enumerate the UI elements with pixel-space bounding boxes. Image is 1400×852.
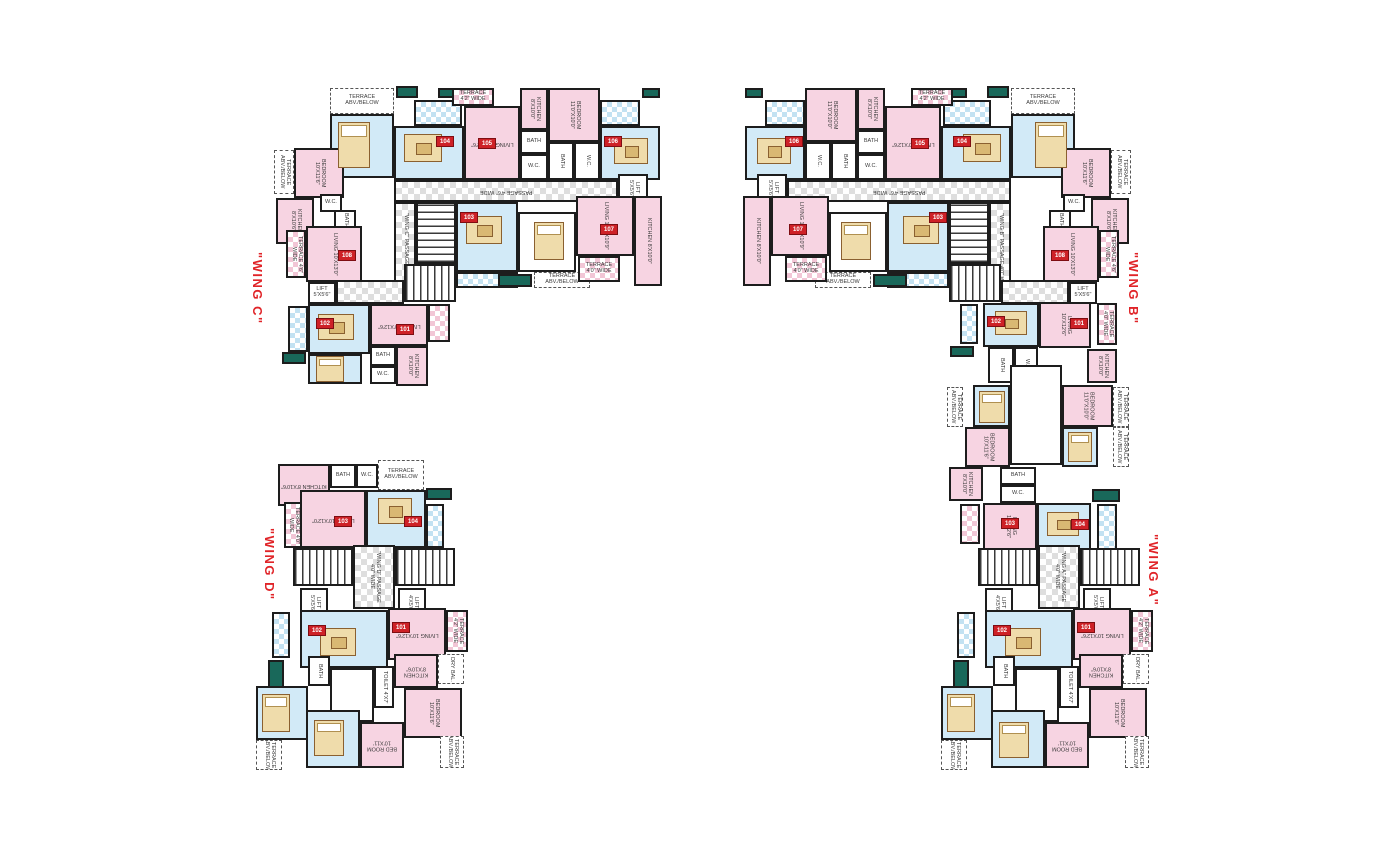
room-label: KITCHEN 8'X10'0": [959, 469, 973, 499]
room-label: BEDROOM 11'0"X10'0": [824, 90, 838, 140]
room-label: TERRACE ABV./BELOW: [1114, 428, 1128, 466]
room-terrace-abv-below: TERRACE ABV./BELOW: [330, 88, 394, 114]
room-kitchen: KITCHEN 8'X10'0": [1087, 349, 1117, 383]
unit-number-badge: 104: [436, 136, 454, 147]
room-bath: BATH: [520, 130, 548, 154]
room-bedroom: BEDROOM 10'X11'6": [965, 427, 1010, 467]
room-living-103: LIVING 10'X12'0": [300, 490, 366, 548]
room-lift: LIFT 5'X5'6": [308, 282, 336, 304]
unit-number-badge: 105: [478, 138, 496, 149]
room-label: TERRACE 4'2" WIDE: [450, 612, 464, 650]
room-kitchen: KITCHEN 8'X10'0": [857, 88, 885, 130]
room-label: TERRACE ABV./BELOW: [947, 740, 961, 770]
bed-icon: [316, 356, 344, 382]
room-terrace-abv-below: TERRACE ABV./BELOW: [274, 150, 294, 194]
room-wc: W.C.: [520, 154, 548, 180]
room-label: BATH: [315, 663, 323, 679]
room-terrace: [600, 100, 640, 126]
room-label: TERRACE ABV./BELOW: [379, 468, 423, 482]
room-terrace: [288, 306, 308, 352]
room-kitchen: KITCHEN 8'X10'0": [396, 346, 428, 386]
room-label: "WING A" PASSAGE 4'0" WIDE: [1052, 547, 1066, 607]
room-terrace: [765, 100, 805, 126]
room-bedroom: BEDROOM 11'0"X10'0": [1062, 385, 1113, 427]
room-wc: W.C.: [1000, 485, 1036, 503]
room-duct: [745, 88, 763, 98]
room-label: TERRACE 4'6" WIDE: [1102, 232, 1116, 276]
room-label: BATH: [557, 153, 565, 169]
bed-icon: [534, 222, 564, 260]
wing-name-label: "WING A": [1146, 534, 1161, 606]
room-label: BEDROOM 11'0"X10'0": [1081, 387, 1095, 425]
room-terrace: TERRACE 4'0" WIDE: [284, 502, 302, 548]
unit-number-badge: 102: [316, 318, 334, 329]
room-bath: BATH: [308, 656, 330, 686]
room-label: TERRACE ABV./BELOW: [1114, 151, 1128, 193]
room-terrace: TERRACE 4'0" WIDE: [578, 256, 620, 282]
room-label: TERRACE ABV./BELOW: [331, 94, 393, 108]
room-label: TERRACE ABV./BELOW: [1114, 388, 1128, 426]
room-label: BATH: [526, 138, 542, 146]
room-label: W.C.: [324, 199, 338, 207]
room-bedroom: BEDROOM 11'0"X10'0": [548, 88, 600, 142]
bed-pillow: [1002, 725, 1026, 734]
unit-number-badge: 103: [334, 516, 352, 527]
unit-number-badge: 102: [987, 316, 1005, 327]
room-label: BATH: [1010, 472, 1026, 480]
unit-number-badge: 104: [404, 516, 422, 527]
bed-pillow: [1038, 125, 1064, 137]
room-staircase: [416, 202, 456, 264]
room-label: BATH: [375, 352, 391, 360]
room-label: LIVING 10'X13'0": [330, 232, 338, 277]
room-staircase: [949, 264, 1001, 302]
room-dry-balcony: DRY BAL.: [438, 654, 464, 684]
unit-number-badge: 107: [600, 224, 618, 235]
room-label: LIFT 5'X5'6": [310, 286, 334, 300]
room-court: [1010, 365, 1062, 465]
room-wc: W.C.: [857, 154, 885, 180]
bed-pillow: [844, 225, 868, 235]
unit-number-badge: 105: [911, 138, 929, 149]
room-label: BEDROOM 10'X11'6": [312, 150, 326, 196]
floor-plan: TERRACE ABV./BELOWTERRACE 4'2" WIDELIVIN…: [0, 0, 1400, 852]
room-duct: [396, 86, 418, 98]
room-bath: BATH: [993, 656, 1015, 686]
room-staircase: [395, 548, 455, 586]
room-kitchen: KITCHEN 8'X10'0": [520, 88, 548, 130]
room-bath: BATH: [1000, 467, 1036, 485]
unit-number-badge: 102: [308, 625, 326, 636]
room-bedroom: BEDROOM 11'0"X10'0": [805, 88, 857, 142]
room-duct: [1092, 489, 1120, 502]
bed-pillow: [319, 359, 341, 366]
room-terrace-abv-below: TERRACE ABV./BELOW: [378, 460, 424, 490]
room-living-101: LIVING 10'X12'6": [388, 608, 446, 660]
bed-pillow: [265, 697, 287, 707]
room-wc: W.C.: [370, 366, 396, 384]
room-label: W.C.: [583, 154, 591, 168]
room-bedroom: BEDROOM 10'X11'6": [1061, 148, 1111, 198]
room-label: PASSAGE 4'6" WIDE: [872, 187, 926, 195]
room-label: KITCHEN 8'X10'6": [280, 481, 328, 489]
room-label: TERRACE 4'0" WIDE: [787, 262, 825, 276]
wing-name-label: "WING D": [262, 528, 277, 601]
room-label: PASSAGE 4'6" WIDE: [479, 187, 533, 195]
sofa-table: [625, 146, 640, 158]
room-staircase: [978, 548, 1038, 586]
room-staircase: [1080, 548, 1140, 586]
room-label: W.C.: [1011, 490, 1025, 498]
room-label: TERRACE 4'6" WIDE: [289, 232, 303, 276]
room-terrace: [1097, 504, 1117, 550]
room-label: BATH: [840, 153, 848, 169]
room-label: "WING D" PASSAGE 4'0" WIDE: [367, 547, 381, 607]
room-label: BATH: [863, 138, 879, 146]
unit-number-badge: 103: [929, 212, 947, 223]
bed-icon: [262, 694, 290, 732]
room-label: DRY BAL.: [447, 656, 455, 683]
room-terrace: [428, 304, 450, 342]
room-label: TERRACE ABV./BELOW: [262, 740, 276, 770]
wing-name-label: "WING C": [250, 252, 265, 325]
room-wc: W.C.: [356, 464, 378, 488]
room-label: BEDROOM 10'X11'6": [981, 429, 995, 465]
room-duct: [268, 660, 284, 688]
bed-icon: [979, 391, 1005, 423]
room-label: TERRACE ABV./BELOW: [1012, 94, 1074, 108]
room-label: DRY BAL.: [1132, 656, 1140, 683]
sofa-table: [1005, 319, 1019, 330]
room-lift: LIFT 5'X5'6": [1069, 282, 1097, 304]
room-label: TERRACE 4'0" WIDE: [1100, 305, 1114, 343]
room-terrace: TERRACE 4'6" WIDE: [1099, 230, 1119, 278]
room-terrace: [960, 304, 978, 344]
room-wc: W.C.: [805, 142, 831, 180]
room-label: BATH: [1000, 663, 1008, 679]
room-living-101: LIVING 10'X12'6": [1073, 608, 1131, 660]
unit-number-badge: 104: [953, 136, 971, 147]
room-bath: BATH: [857, 130, 885, 154]
bed-icon: [1035, 122, 1067, 168]
unit-number-badge: 101: [392, 622, 410, 633]
bed-icon: [338, 122, 370, 168]
room-bedroom: BEDROOM 10'X11'6": [294, 148, 344, 198]
room-label: W.C.: [376, 371, 390, 379]
room-flower-bed: [426, 488, 452, 500]
room-terrace-abv-below: TERRACE ABV./BELOW: [941, 740, 967, 770]
unit-number-badge: 102: [993, 625, 1011, 636]
room-kitchen: KITCHEN 8'X10'0": [743, 196, 771, 286]
bed-icon: [999, 722, 1029, 758]
bed-icon: [841, 222, 871, 260]
room-staircase: [949, 202, 989, 264]
room-bedroom: BED ROOM 10'X11': [1045, 722, 1089, 768]
sofa-table: [416, 143, 432, 155]
sofa-table: [768, 146, 783, 158]
room-bath: BATH: [548, 142, 574, 180]
room-terrace: TERRACE 4'0" WIDE: [1097, 303, 1117, 345]
unit-number-badge: 104: [1071, 519, 1089, 530]
bed-pillow: [341, 125, 367, 137]
room-terrace: [960, 504, 980, 544]
room-wc: W.C.: [574, 142, 600, 180]
room-duct: [950, 346, 974, 357]
sofa-table: [477, 225, 493, 237]
unit-number-badge: 101: [1077, 622, 1095, 633]
room-label: TOILET 4'X7': [1065, 670, 1073, 704]
room-terrace: TERRACE 4'2" WIDE: [452, 88, 494, 106]
unit-number-badge: 103: [460, 212, 478, 223]
unit-number-badge: 108: [1051, 250, 1069, 261]
sofa-table: [1016, 637, 1032, 649]
room-bedroom: BEDROOM 10'X11'6": [404, 688, 462, 738]
room-kitchen: KITCHEN 8'X10'6": [1079, 654, 1123, 688]
unit-number-badge: 103: [1001, 518, 1019, 529]
room-wing-passage: "WING A" PASSAGE 4'0" WIDE: [1038, 545, 1080, 609]
room-terrace: TERRACE 4'2" WIDE: [1131, 610, 1153, 652]
room-label: W.C.: [864, 163, 878, 171]
room-label: W.C.: [1067, 199, 1081, 207]
room-toilet: TOILET 4'X7': [374, 666, 394, 708]
room-bedroom: BED ROOM 10'X11': [360, 722, 404, 768]
room-label: KITCHEN 8'X10'6": [396, 664, 436, 678]
room-bath: BATH: [831, 142, 857, 180]
room-bath: BATH: [330, 464, 356, 488]
room-label: BEDROOM 10'X11'6": [426, 690, 440, 736]
bed-pillow: [317, 723, 341, 732]
room-terrace: [272, 612, 290, 658]
room-terrace-abv-below: TERRACE ABV./BELOW: [440, 736, 464, 768]
bed-icon: [947, 694, 975, 732]
room-passage: [1001, 280, 1069, 304]
room-wing-passage: "WING D" PASSAGE 4'0" WIDE: [353, 545, 395, 609]
bed-pillow: [537, 225, 561, 235]
room-label: KITCHEN 8'X10'0": [864, 90, 878, 128]
room-staircase: [404, 264, 456, 302]
room-label: BEDROOM 10'X11'6": [1079, 150, 1093, 196]
room-duct: [987, 86, 1009, 98]
room-terrace: TERRACE 4'2" WIDE: [446, 610, 468, 652]
unit-number-badge: 107: [789, 224, 807, 235]
sofa-table: [389, 506, 404, 518]
room-terrace: [426, 504, 444, 548]
room-label: BED ROOM 10'X11': [362, 738, 402, 752]
room-kitchen: KITCHEN 8'X10'6": [394, 654, 438, 688]
room-flower-bed: [498, 274, 532, 287]
room-kitchen: KITCHEN 8'X10'0": [949, 467, 983, 501]
room-label: BEDROOM 11'0"X10'0": [567, 90, 581, 140]
room-bedroom: BEDROOM 10'X11'6": [1089, 688, 1147, 738]
room-terrace-abv-below: TERRACE ABV./BELOW: [1113, 387, 1129, 427]
room-label: TERRACE ABV./BELOW: [948, 388, 962, 426]
unit-number-badge: 108: [338, 250, 356, 261]
unit-number-badge: 101: [1070, 318, 1088, 329]
room-label: BEDROOM 10'X11'6": [1111, 690, 1125, 736]
wing-name-label: "WING B": [1126, 252, 1141, 325]
room-label: BATH: [997, 357, 1005, 373]
bed-icon: [314, 720, 344, 756]
room-duct: [282, 352, 306, 364]
sofa-table: [1057, 520, 1071, 531]
room-label: KITCHEN 8'X10'0": [405, 348, 419, 384]
room-terrace-abv-below: TERRACE ABV./BELOW: [1111, 150, 1131, 194]
room-label: W.C.: [360, 472, 374, 480]
room-terrace-abv-below: TERRACE ABV./BELOW: [1113, 427, 1129, 467]
room-terrace-abv-below: TERRACE ABV./BELOW: [1011, 88, 1075, 114]
room-label: TERRACE 4'0" WIDE: [286, 504, 300, 546]
room-label: TERRACE 4'2" WIDE: [1135, 612, 1149, 650]
bed-pillow: [1071, 435, 1089, 443]
room-label: TERRACE ABV./BELOW: [1130, 736, 1144, 768]
room-label: W.C.: [527, 163, 541, 171]
room-label: TERRACE 4'0" WIDE: [580, 262, 618, 276]
sofa-table: [331, 637, 347, 649]
room-label: KITCHEN 8'X10'0": [753, 217, 761, 265]
bed-icon: [1068, 432, 1092, 462]
room-duct: [642, 88, 660, 98]
room-label: TERRACE ABV./BELOW: [445, 736, 459, 768]
room-label: LIFT 5'X5'6": [1071, 286, 1095, 300]
room-terrace-abv-below: TERRACE ABV./BELOW: [256, 740, 282, 770]
room-terrace: TERRACE 4'2" WIDE: [911, 88, 953, 106]
room-toilet: TOILET 4'X7': [1059, 666, 1079, 708]
room-label: KITCHEN 8'X10'6": [1081, 664, 1121, 678]
room-label: TERRACE 4'2" WIDE: [913, 90, 951, 104]
room-dry-balcony: DRY BAL.: [1123, 654, 1149, 684]
room-terrace: TERRACE 4'6" WIDE: [286, 230, 306, 278]
unit-number-badge: 106: [785, 136, 803, 147]
bed-pillow: [950, 697, 972, 707]
room-label: KITCHEN 8'X10'0": [1095, 351, 1109, 381]
room-duct: [953, 660, 969, 688]
bed-pillow: [982, 394, 1002, 403]
room-kitchen: KITCHEN 8'X10'0": [634, 196, 662, 286]
room-duct: [951, 88, 967, 98]
room-staircase: [293, 548, 353, 586]
room-label: BED ROOM 10'X11': [1047, 738, 1087, 752]
room-passage: [336, 280, 404, 304]
sofa-table: [914, 225, 930, 237]
room-terrace: TERRACE 4'0" WIDE: [785, 256, 827, 282]
room-label: TOILET 4'X7': [380, 670, 388, 704]
unit-number-badge: 106: [604, 136, 622, 147]
room-label: KITCHEN 8'X10'0": [527, 90, 541, 128]
sofa-table: [975, 143, 991, 155]
room-label: W.C.: [814, 154, 822, 168]
room-terrace: [957, 612, 975, 658]
room-label: TERRACE 4'2" WIDE: [454, 90, 492, 104]
room-label: TERRACE ABV./BELOW: [277, 151, 291, 193]
room-flower-bed: [873, 274, 907, 287]
unit-number-badge: 101: [396, 324, 414, 335]
room-terrace-abv-below: TERRACE ABV./BELOW: [947, 387, 963, 427]
room-label: BATH: [335, 472, 351, 480]
room-terrace-abv-below: TERRACE ABV./BELOW: [1125, 736, 1149, 768]
room-label: KITCHEN 8'X10'0": [644, 217, 652, 265]
room-bath: BATH: [370, 346, 396, 366]
